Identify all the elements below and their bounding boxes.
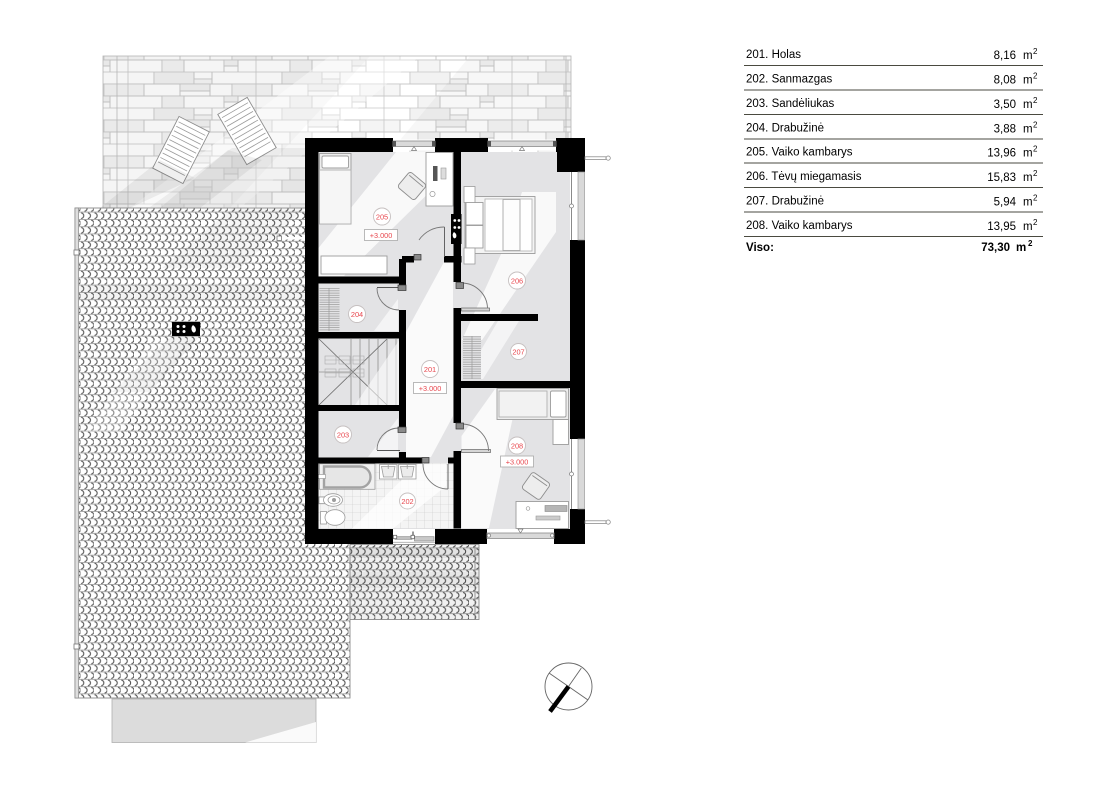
svg-text:m: m (1023, 221, 1033, 233)
svg-text:m: m (1023, 172, 1033, 184)
svg-text:2: 2 (1033, 169, 1038, 178)
svg-text:+3.000: +3.000 (506, 458, 529, 467)
svg-text:8,16: 8,16 (994, 50, 1016, 62)
svg-text:2: 2 (1033, 194, 1038, 203)
svg-text:m: m (1016, 242, 1026, 254)
svg-text:2: 2 (1033, 145, 1038, 154)
svg-text:2: 2 (1033, 72, 1038, 81)
svg-text:5,94: 5,94 (994, 197, 1017, 209)
svg-text:202: 202 (401, 497, 413, 506)
svg-text:203. Sandėliukas: 203. Sandėliukas (746, 98, 834, 110)
svg-text:205: 205 (376, 213, 388, 222)
svg-text:205. Vaiko kambarys: 205. Vaiko kambarys (746, 147, 853, 159)
svg-text:Viso:: Viso: (746, 242, 774, 254)
svg-text:13,95: 13,95 (987, 221, 1016, 233)
svg-text:m: m (1023, 197, 1033, 209)
svg-text:207. Drabužinė: 207. Drabužinė (746, 196, 824, 208)
svg-text:201. Holas: 201. Holas (746, 49, 801, 61)
svg-text:+3.000: +3.000 (370, 231, 393, 240)
svg-text:206: 206 (511, 277, 523, 286)
svg-text:206. Tėvų miegamasis: 206. Tėvų miegamasis (746, 171, 862, 183)
svg-text:2: 2 (1028, 239, 1033, 248)
svg-text:202. Sanmazgas: 202. Sanmazgas (746, 74, 833, 86)
svg-text:2: 2 (1033, 96, 1038, 105)
svg-text:m: m (1023, 148, 1033, 160)
svg-text:203: 203 (337, 431, 349, 440)
svg-text:13,96: 13,96 (987, 148, 1016, 160)
svg-text:8,08: 8,08 (994, 75, 1016, 87)
svg-text:3,88: 3,88 (994, 124, 1016, 136)
svg-text:m: m (1023, 75, 1033, 87)
svg-text:+3.000: +3.000 (419, 384, 442, 393)
svg-text:m: m (1023, 50, 1033, 62)
svg-text:3,50: 3,50 (994, 99, 1016, 111)
svg-text:204: 204 (351, 310, 363, 319)
svg-text:15,83: 15,83 (987, 172, 1016, 184)
svg-text:204. Drabužinė: 204. Drabužinė (746, 123, 824, 135)
svg-text:208. Vaiko kambarys: 208. Vaiko kambarys (746, 220, 853, 232)
svg-text:m: m (1023, 124, 1033, 136)
svg-text:m: m (1023, 99, 1033, 111)
svg-text:2: 2 (1033, 47, 1038, 56)
svg-text:2: 2 (1033, 121, 1038, 130)
svg-text:2: 2 (1033, 218, 1038, 227)
svg-text:207: 207 (512, 348, 524, 357)
svg-text:201: 201 (424, 365, 436, 374)
svg-text:208: 208 (511, 442, 523, 451)
svg-text:73,30: 73,30 (981, 242, 1010, 254)
